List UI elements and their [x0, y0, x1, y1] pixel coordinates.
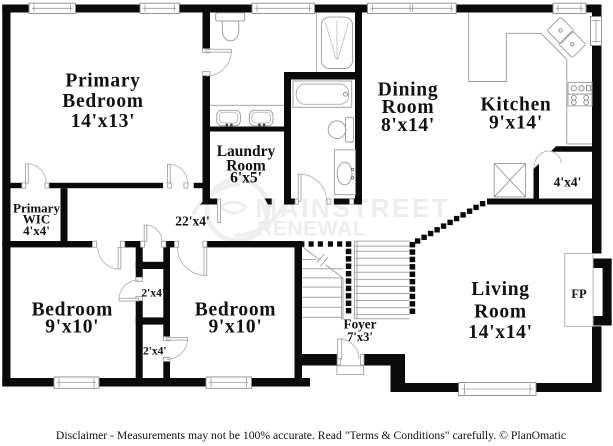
- svg-text:2'x4': 2'x4': [143, 346, 167, 358]
- svg-text:14'x14': 14'x14': [468, 322, 533, 343]
- svg-text:2'x4': 2'x4': [141, 288, 165, 300]
- svg-text:Disclaimer - Measurements may: Disclaimer - Measurements may not be 100…: [56, 429, 566, 442]
- svg-text:4'x4': 4'x4': [23, 223, 50, 238]
- svg-text:Room: Room: [474, 302, 527, 323]
- svg-text:9'x10': 9'x10': [45, 317, 99, 338]
- svg-text:Living: Living: [471, 279, 529, 300]
- svg-text:Bedroom: Bedroom: [62, 91, 143, 112]
- svg-text:Primary: Primary: [65, 71, 140, 92]
- svg-text:RENEWAL: RENEWAL: [257, 218, 366, 241]
- svg-text:9'x10': 9'x10': [208, 317, 262, 338]
- svg-text:22'x4': 22'x4': [175, 214, 210, 229]
- svg-text:8'x14': 8'x14': [381, 115, 435, 136]
- svg-text:4'x4': 4'x4': [554, 175, 582, 190]
- svg-text:6'x5': 6'x5': [230, 170, 262, 187]
- svg-text:14'x13': 14'x13': [71, 111, 136, 132]
- svg-text:7'x3': 7'x3': [347, 330, 373, 344]
- svg-text:9'x14': 9'x14': [489, 113, 543, 134]
- svg-text:FP: FP: [571, 287, 587, 301]
